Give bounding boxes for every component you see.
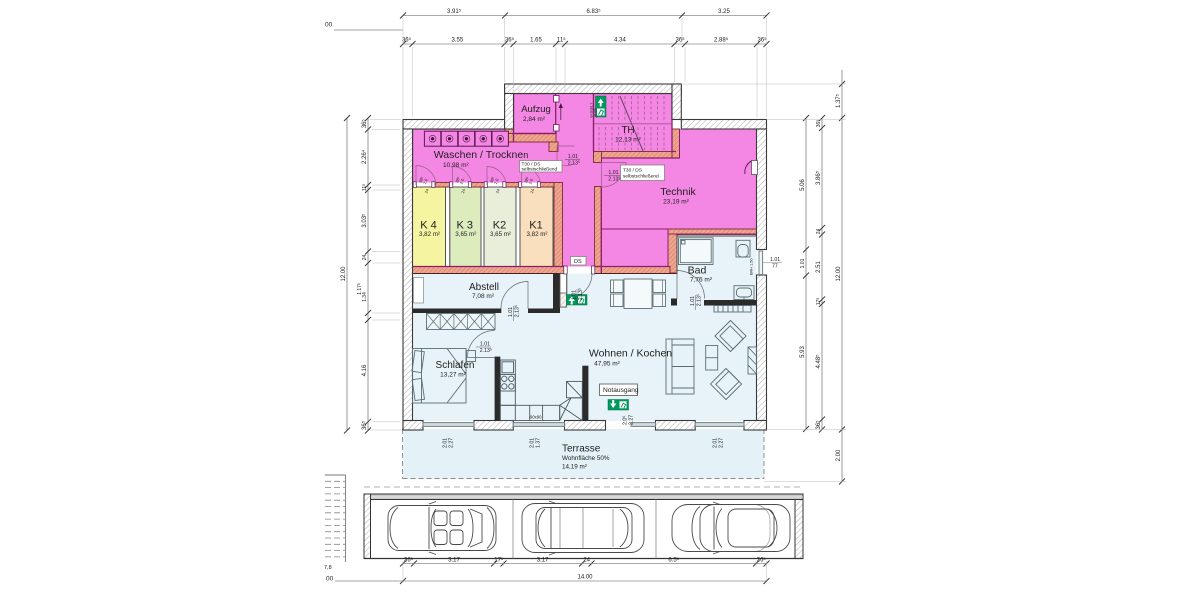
- svg-text:1.01: 1.01: [800, 258, 806, 268]
- svg-text:T30 / DS: T30 / DS: [522, 162, 541, 168]
- svg-text:1.37: 1.37: [536, 438, 542, 448]
- svg-text:1.01: 1.01: [608, 170, 618, 176]
- svg-text:5.06: 5.06: [800, 179, 806, 191]
- svg-text:Abstell: Abstell: [469, 282, 499, 293]
- svg-text:2,84 m²: 2,84 m²: [523, 116, 546, 123]
- svg-text:TH: TH: [621, 125, 634, 136]
- svg-text:4.34: 4.34: [614, 38, 626, 44]
- svg-text:14.00: 14.00: [577, 575, 593, 581]
- svg-text:7,76 m²: 7,76 m²: [690, 277, 713, 284]
- svg-text:3,82 m²: 3,82 m²: [527, 231, 548, 238]
- svg-text:12.00: 12.00: [341, 266, 347, 282]
- svg-text:1.01: 1.01: [508, 307, 514, 317]
- svg-text:K 3: K 3: [457, 220, 474, 232]
- svg-text:1.01: 1.01: [572, 290, 578, 300]
- svg-text:Aufzug: Aufzug: [521, 104, 551, 115]
- svg-text:2.51: 2.51: [816, 261, 822, 273]
- svg-text:Terrasse: Terrasse: [562, 444, 601, 455]
- svg-text:3.55: 3.55: [452, 38, 464, 44]
- svg-text:2.27: 2.27: [449, 438, 455, 448]
- svg-text:00: 00: [325, 22, 333, 29]
- svg-text:2.13⁵: 2.13⁵: [568, 161, 580, 167]
- svg-text:10,98 m²: 10,98 m²: [443, 162, 469, 169]
- svg-text:7,8: 7,8: [324, 565, 332, 571]
- svg-text:3,65 m²: 3,65 m²: [455, 231, 476, 238]
- svg-text:Waschen / Trocknen: Waschen / Trocknen: [434, 149, 529, 161]
- svg-text:2.13⁵: 2.13⁵: [578, 288, 584, 300]
- svg-text:24: 24: [362, 255, 368, 261]
- svg-text:Notausgang: Notausgang: [603, 387, 639, 394]
- svg-text:14,19 m²: 14,19 m²: [562, 464, 587, 471]
- svg-text:1.01: 1.01: [480, 342, 490, 348]
- svg-text:3,82 m²: 3,82 m²: [419, 231, 440, 238]
- svg-text:2.00: 2.00: [836, 449, 842, 461]
- svg-text:47,95 m²: 47,95 m²: [594, 361, 620, 368]
- svg-text:13,27 m²: 13,27 m²: [440, 372, 466, 379]
- svg-text:selbstschließend: selbstschließend: [522, 167, 558, 173]
- svg-text:2.27: 2.27: [629, 415, 635, 425]
- svg-text:BRH 1.50: BRH 1.50: [750, 259, 754, 275]
- svg-text:7,08 m²: 7,08 m²: [472, 293, 495, 300]
- svg-text:2.13⁵: 2.13⁵: [697, 294, 703, 306]
- svg-text:24: 24: [583, 558, 590, 564]
- svg-text:K2: K2: [493, 220, 506, 232]
- svg-text:77: 77: [772, 264, 778, 270]
- svg-text:K1: K1: [529, 220, 542, 232]
- svg-text:3.17: 3.17: [537, 558, 549, 564]
- svg-text:1.65: 1.65: [530, 38, 542, 44]
- svg-text:24: 24: [816, 229, 822, 235]
- svg-text:3,65 m²: 3,65 m²: [490, 231, 511, 238]
- svg-text:12.00: 12.00: [836, 266, 842, 282]
- svg-text:3.17: 3.17: [448, 558, 460, 564]
- svg-text:1.01: 1.01: [568, 154, 578, 160]
- svg-text:23,19 m²: 23,19 m²: [663, 199, 689, 206]
- svg-text:Technik: Technik: [660, 186, 696, 198]
- svg-text:K 4: K 4: [420, 220, 437, 232]
- svg-text:Wohnfläche 50%: Wohnfläche 50%: [562, 455, 610, 462]
- svg-text:90x90: 90x90: [530, 415, 542, 420]
- svg-text:2.13⁵: 2.13⁵: [480, 348, 492, 354]
- svg-text:4.16: 4.16: [362, 364, 368, 376]
- svg-text:2.13⁵: 2.13⁵: [515, 305, 521, 317]
- svg-text:1.34: 1.34: [362, 292, 368, 302]
- svg-text:5.93: 5.93: [800, 346, 806, 358]
- svg-text:T30 / DS: T30 / DS: [623, 168, 642, 174]
- svg-text:1.01: 1.01: [690, 296, 696, 306]
- svg-text:DS: DS: [574, 259, 582, 265]
- svg-text:Bad: Bad: [688, 265, 707, 277]
- svg-text:2.27: 2.27: [719, 438, 725, 448]
- svg-text:3.25: 3.25: [718, 9, 730, 15]
- svg-text:16,09: 16,09: [594, 108, 598, 118]
- svg-text:Wohnen / Kochen: Wohnen / Kochen: [589, 348, 672, 360]
- svg-text:1.01: 1.01: [770, 257, 780, 263]
- svg-text:2.13⁵: 2.13⁵: [608, 177, 620, 183]
- svg-text:Schlafen: Schlafen: [436, 360, 475, 371]
- svg-text:12,13 m²: 12,13 m²: [615, 137, 641, 144]
- svg-text:00: 00: [326, 576, 334, 583]
- svg-text:selbstschließend: selbstschließend: [623, 174, 659, 180]
